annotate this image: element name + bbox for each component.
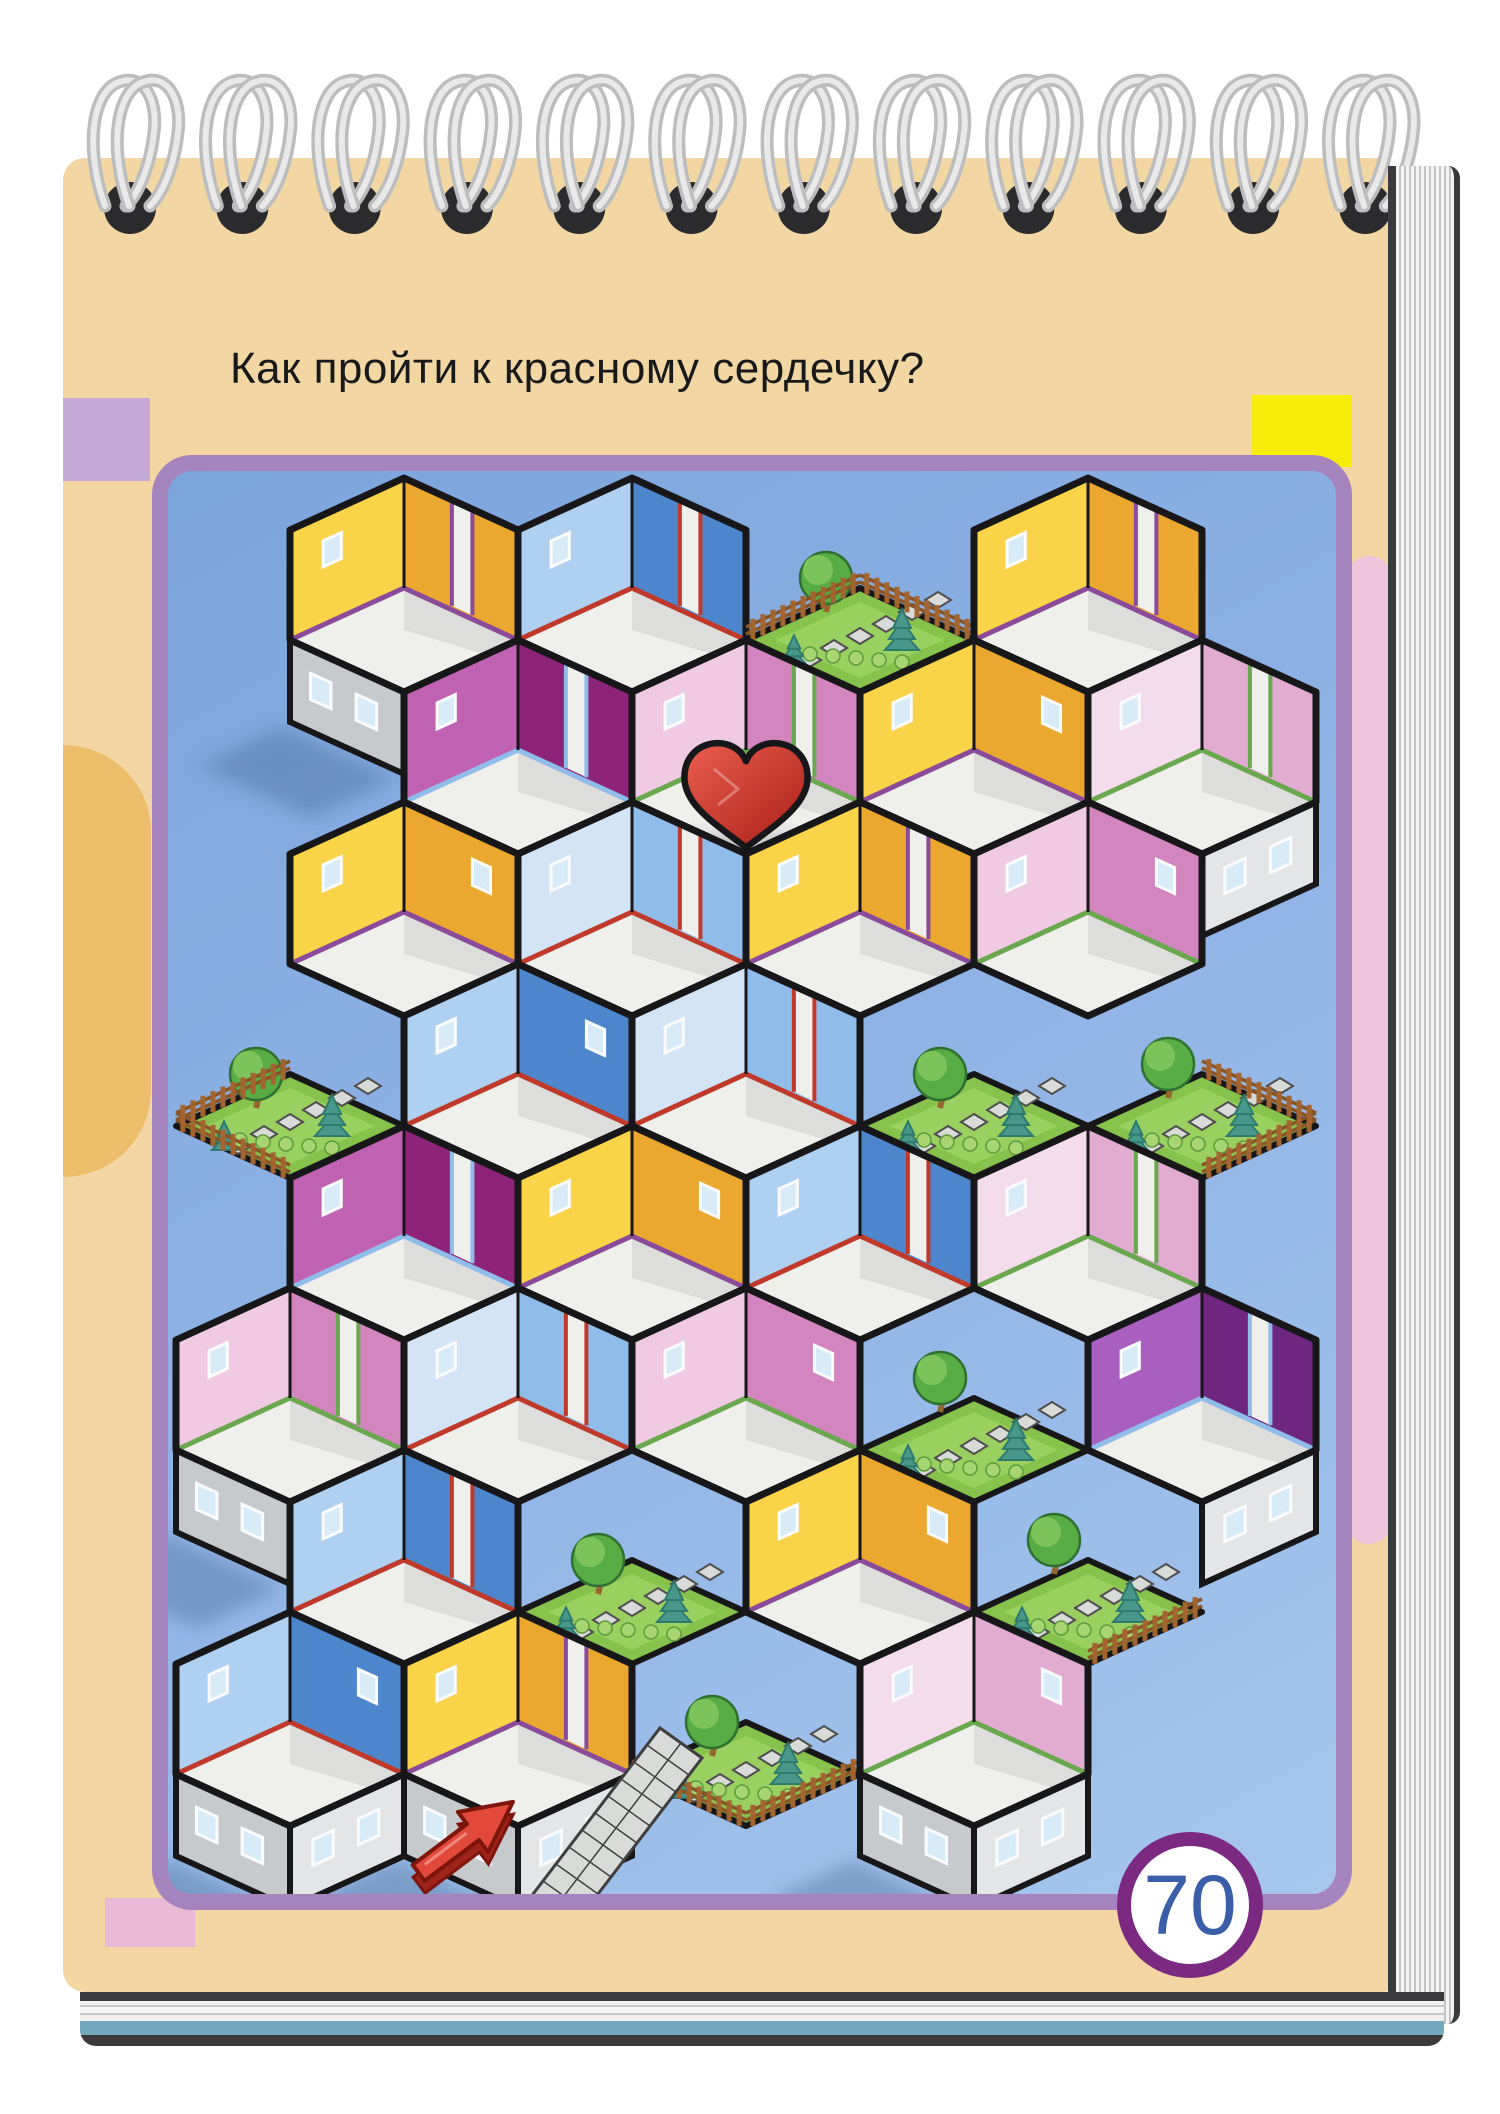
decor-lilac-rect xyxy=(63,398,150,481)
maze-room xyxy=(176,1612,404,1894)
maze-room xyxy=(860,1612,1088,1894)
page-number: 70 xyxy=(1143,1863,1236,1947)
spiral-ring xyxy=(1104,80,1189,234)
spiral-ring xyxy=(206,80,291,234)
spiral-ring xyxy=(542,80,627,234)
spiral-ring xyxy=(93,80,178,234)
page-number-badge: 70 xyxy=(1117,1832,1263,1978)
spiral-ring xyxy=(992,80,1077,234)
spiral-binding xyxy=(0,0,1500,260)
maze-room xyxy=(1088,1288,1316,1584)
decor-orange-blob xyxy=(63,745,151,1177)
spiral-ring xyxy=(318,80,403,234)
spiral-ring xyxy=(655,80,740,234)
spiral-ring xyxy=(767,80,852,234)
page-edge-right xyxy=(1388,166,1460,2024)
decor-pink-blob xyxy=(1346,556,1392,1544)
page-title: Как пройти к красному сердечку? xyxy=(230,344,925,394)
spiral-ring xyxy=(430,80,515,234)
maze-canvas xyxy=(168,471,1336,1894)
spiral-ring xyxy=(879,80,964,234)
maze-panel xyxy=(152,455,1352,1910)
page-edge-bottom xyxy=(80,1992,1444,2046)
spiral-ring xyxy=(1216,80,1301,234)
